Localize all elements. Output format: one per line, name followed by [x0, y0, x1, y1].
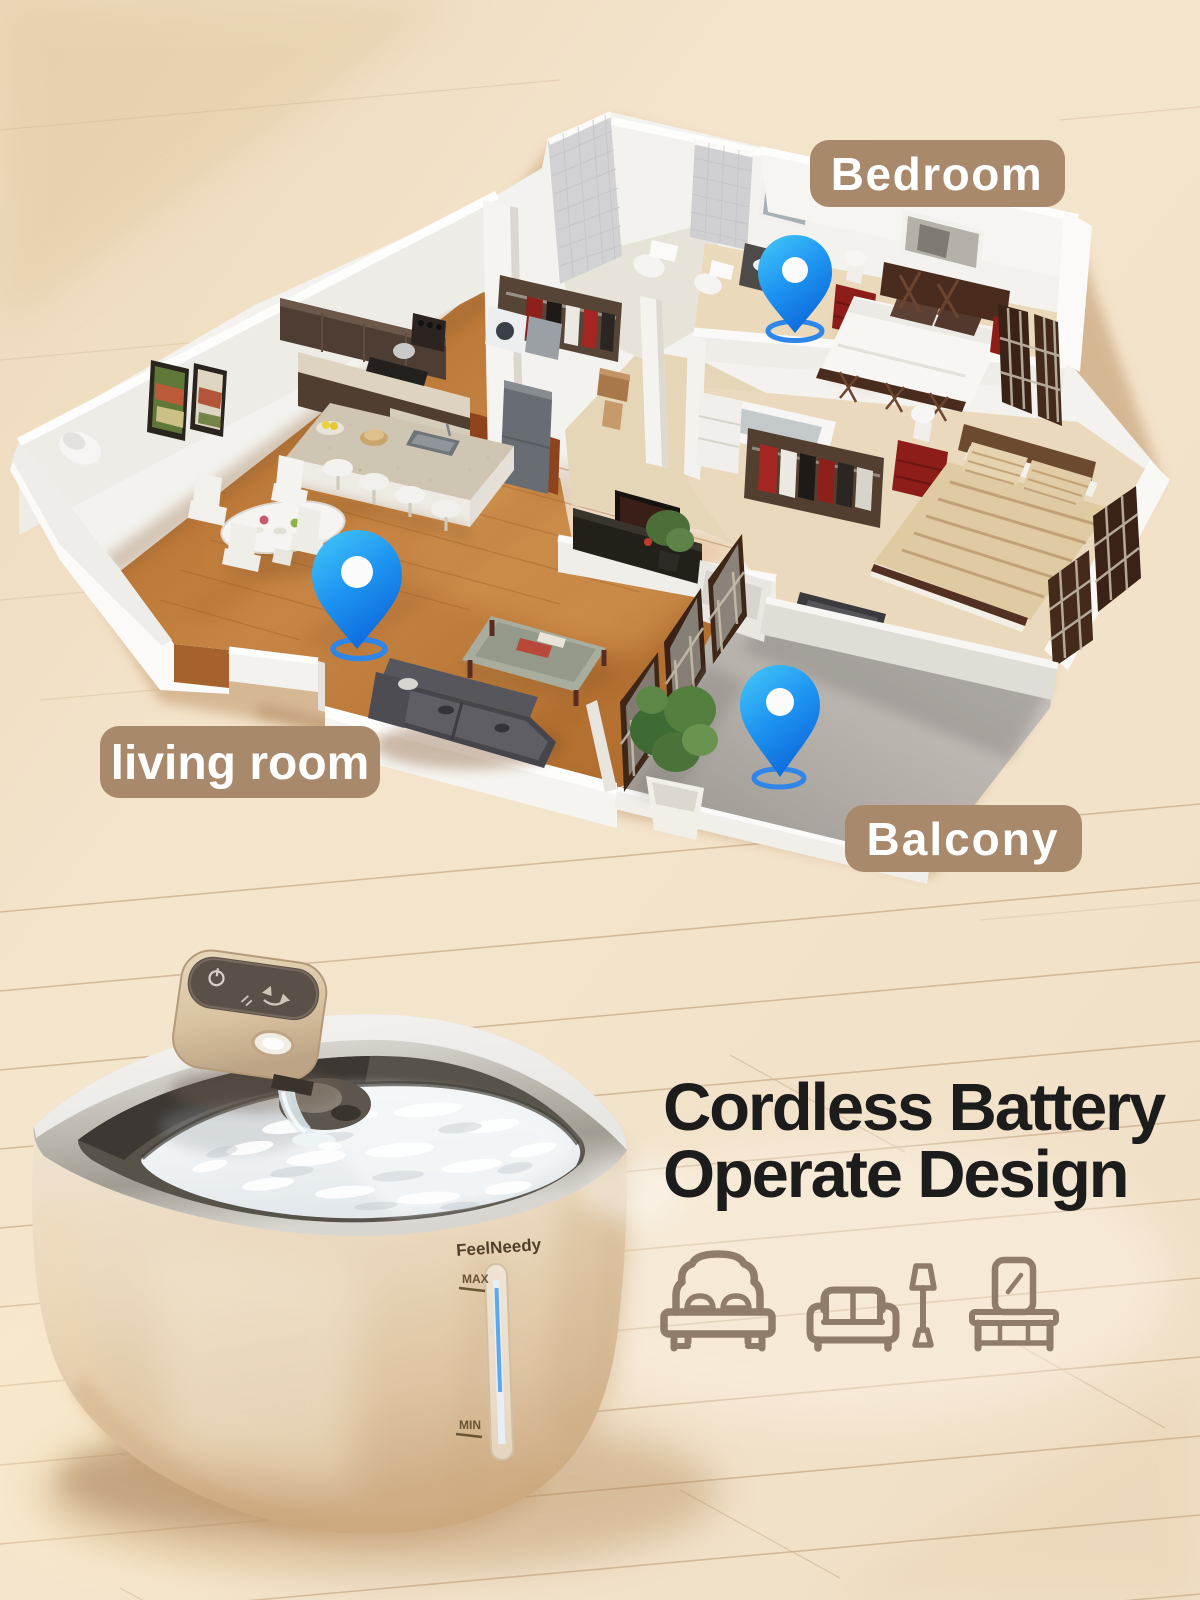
- svg-text:MAX: MAX: [462, 1272, 489, 1286]
- svg-text:Bedroom: Bedroom: [831, 148, 1043, 200]
- svg-text:Operate Design: Operate Design: [663, 1137, 1127, 1212]
- svg-text:Balcony: Balcony: [867, 813, 1060, 865]
- svg-text:MIN: MIN: [459, 1418, 481, 1432]
- svg-text:Cordless Battery: Cordless Battery: [663, 1070, 1166, 1145]
- svg-text:living room: living room: [111, 737, 370, 790]
